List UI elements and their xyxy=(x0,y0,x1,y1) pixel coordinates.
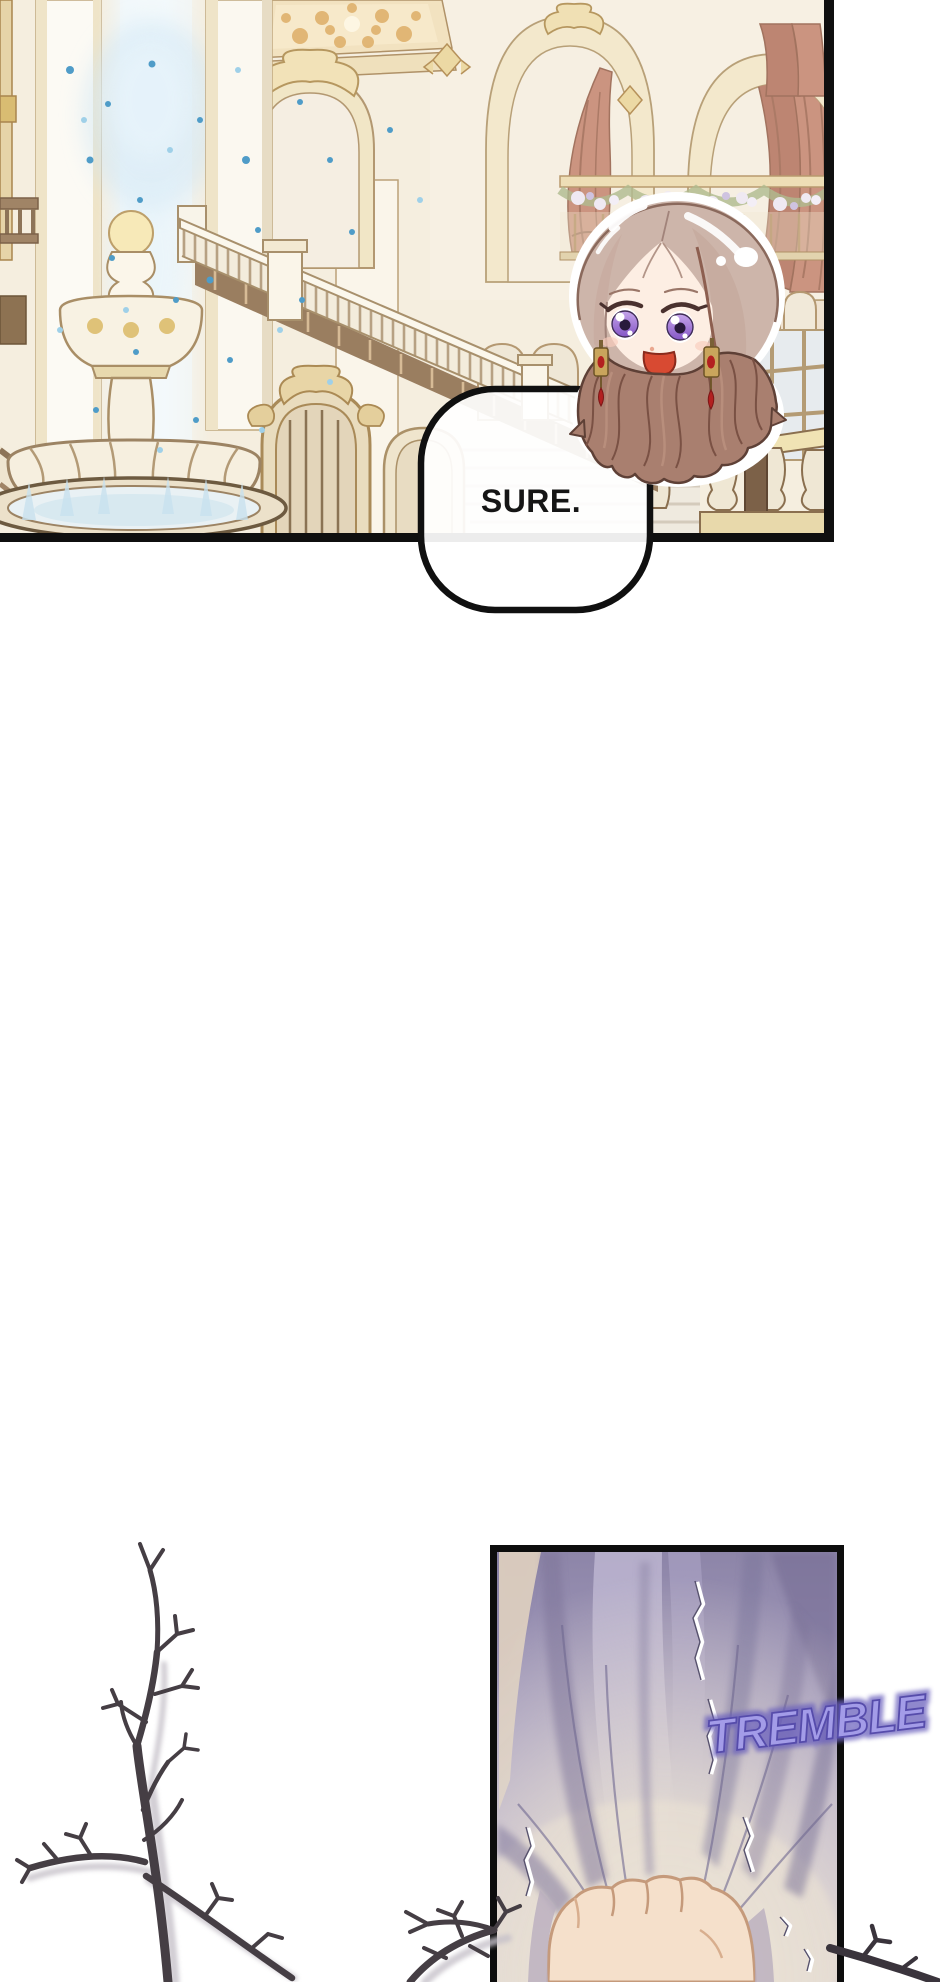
svg-text:SURE.: SURE. xyxy=(481,483,581,519)
